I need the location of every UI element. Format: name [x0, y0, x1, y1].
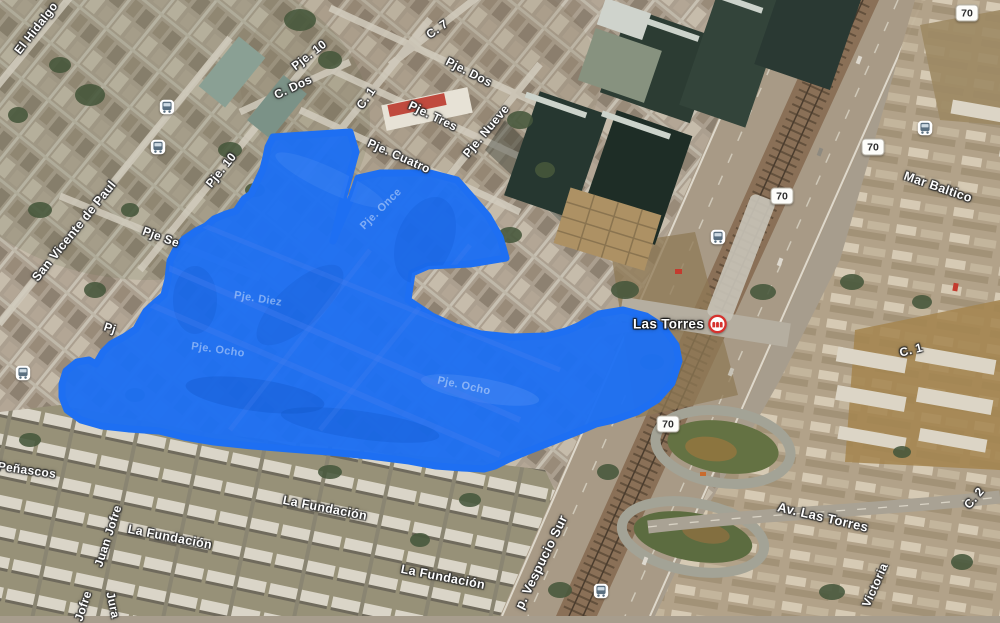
station-name: Las Torres [633, 317, 704, 332]
metro-logo-icon [708, 315, 727, 334]
metro-station[interactable]: Las Torres [633, 315, 727, 334]
stations-layer: Las Torres [0, 0, 1000, 616]
